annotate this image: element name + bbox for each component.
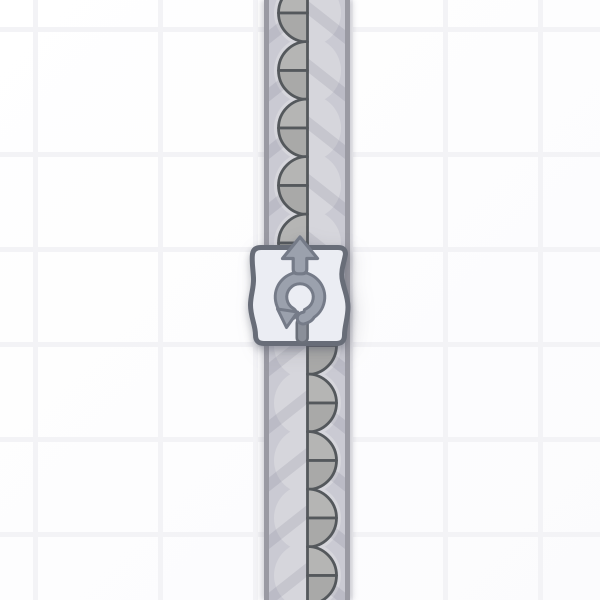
quarter-bottom-right — [308, 346, 337, 375]
rotator-building[interactable] — [251, 237, 349, 344]
quarter-bottom-left — [279, 186, 308, 215]
quarter-top-right — [308, 489, 337, 518]
quarter-bottom-right — [308, 461, 337, 490]
quarter-top-left — [279, 157, 308, 186]
quarter-top-right — [308, 432, 337, 461]
quarter-top-right — [308, 374, 337, 403]
quarter-top-right — [308, 547, 337, 576]
quarter-bottom-left — [279, 128, 308, 157]
quarter-bottom-left — [279, 71, 308, 100]
half-circle-left — [279, 0, 308, 42]
quarter-bottom-left — [279, 13, 308, 42]
belt-items-and-building-canvas — [0, 0, 600, 600]
game-viewport[interactable] — [0, 0, 600, 600]
quarter-top-left — [279, 99, 308, 128]
quarter-top-left — [279, 0, 308, 13]
quarter-bottom-right — [308, 403, 337, 432]
quarter-top-left — [279, 42, 308, 71]
quarter-bottom-right — [308, 518, 337, 547]
